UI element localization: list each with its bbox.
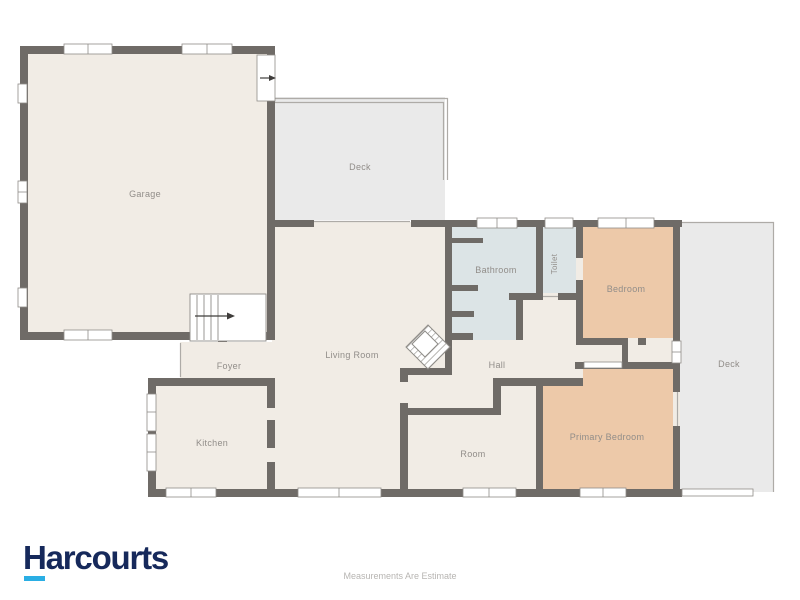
room-label-deck-right: Deck xyxy=(718,359,740,369)
room-label-room: Room xyxy=(460,449,485,459)
deck-right-floor xyxy=(680,222,774,492)
foyer-floor xyxy=(180,342,275,378)
room-label-deck-top: Deck xyxy=(349,162,371,172)
room-label-bedroom: Bedroom xyxy=(607,284,646,294)
harcourts-logo: Harcourts xyxy=(23,541,168,574)
floorplan-image: Garage Deck Bathroom Toilet Bedroom Livi… xyxy=(0,0,800,600)
room-label-bathroom: Bathroom xyxy=(475,265,516,275)
disclaimer-text: Measurements Are Estimate xyxy=(0,571,800,581)
bathroom-floor xyxy=(452,227,536,293)
kitchen-floor xyxy=(148,378,275,492)
room-label-hall: Hall xyxy=(489,360,506,370)
room-label-foyer: Foyer xyxy=(217,361,242,371)
room-label-primary-bedroom: Primary Bedroom xyxy=(570,432,645,442)
toilet-floor xyxy=(543,227,576,293)
room-label-garage: Garage xyxy=(129,189,161,199)
room-label-living-room: Living Room xyxy=(325,350,378,360)
room-label-toilet: Toilet xyxy=(550,253,559,274)
room-label-kitchen: Kitchen xyxy=(196,438,228,448)
deck-top-floor xyxy=(275,97,445,220)
bedroom-floor xyxy=(583,227,673,338)
closet-slider-door xyxy=(584,362,622,368)
floorplan-svg: Garage Deck Bathroom Toilet Bedroom Livi… xyxy=(0,0,800,600)
deck-step xyxy=(682,489,753,496)
